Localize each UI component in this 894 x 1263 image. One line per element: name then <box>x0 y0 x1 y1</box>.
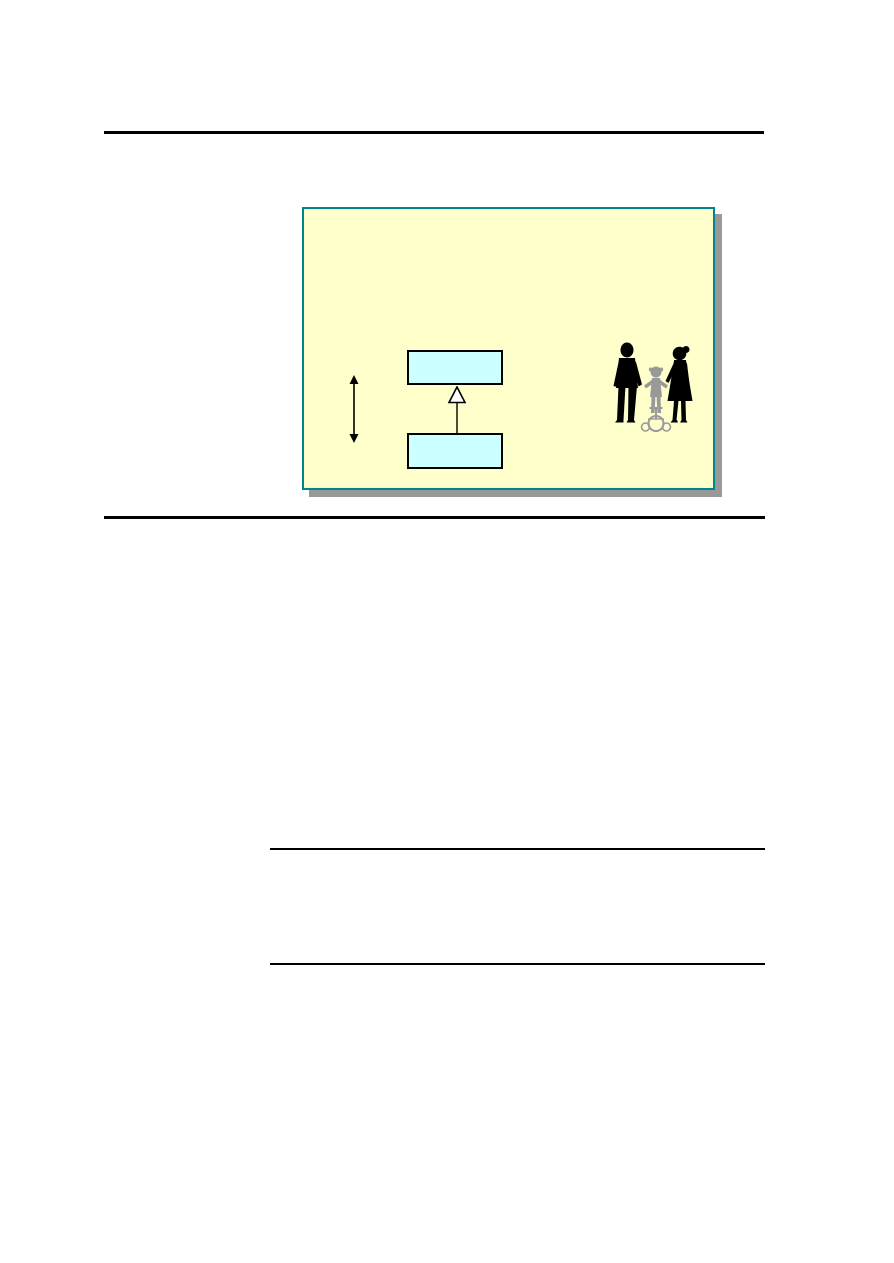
child-leg-right <box>657 396 662 413</box>
child-leg-left <box>651 396 656 413</box>
generalization-triangle-icon <box>447 386 467 436</box>
woman-leg-left <box>673 401 679 420</box>
section-rule <box>104 516 765 519</box>
double-headed-arrow-icon <box>347 375 361 443</box>
man-leg-left <box>617 386 626 420</box>
man-head <box>621 343 634 358</box>
man-foot-left <box>615 420 624 423</box>
woman-foot-left <box>671 420 679 423</box>
woman-silhouette <box>666 346 693 423</box>
woman-leg-right <box>681 401 686 420</box>
child-hair-right <box>659 368 663 372</box>
superclass-box <box>407 350 503 385</box>
arrow-head-up <box>350 375 359 384</box>
man-leg-right <box>628 386 637 420</box>
child-hair-left <box>649 368 653 372</box>
child-silhouette <box>642 367 671 432</box>
arrow-head-down <box>350 434 359 443</box>
man-silhouette <box>614 343 643 423</box>
lower-rule-top <box>270 848 765 850</box>
subclass-box <box>407 433 503 469</box>
document-page <box>0 0 894 1263</box>
woman-foot-right <box>680 420 688 423</box>
lower-rule-bottom <box>270 963 765 965</box>
woman-hair-bun <box>683 346 690 353</box>
top-rule <box>104 131 764 134</box>
figure-canvas <box>302 207 715 490</box>
generalization-triangle <box>449 387 465 403</box>
man-foot-right <box>627 420 636 423</box>
family-silhouette-image <box>608 341 696 437</box>
